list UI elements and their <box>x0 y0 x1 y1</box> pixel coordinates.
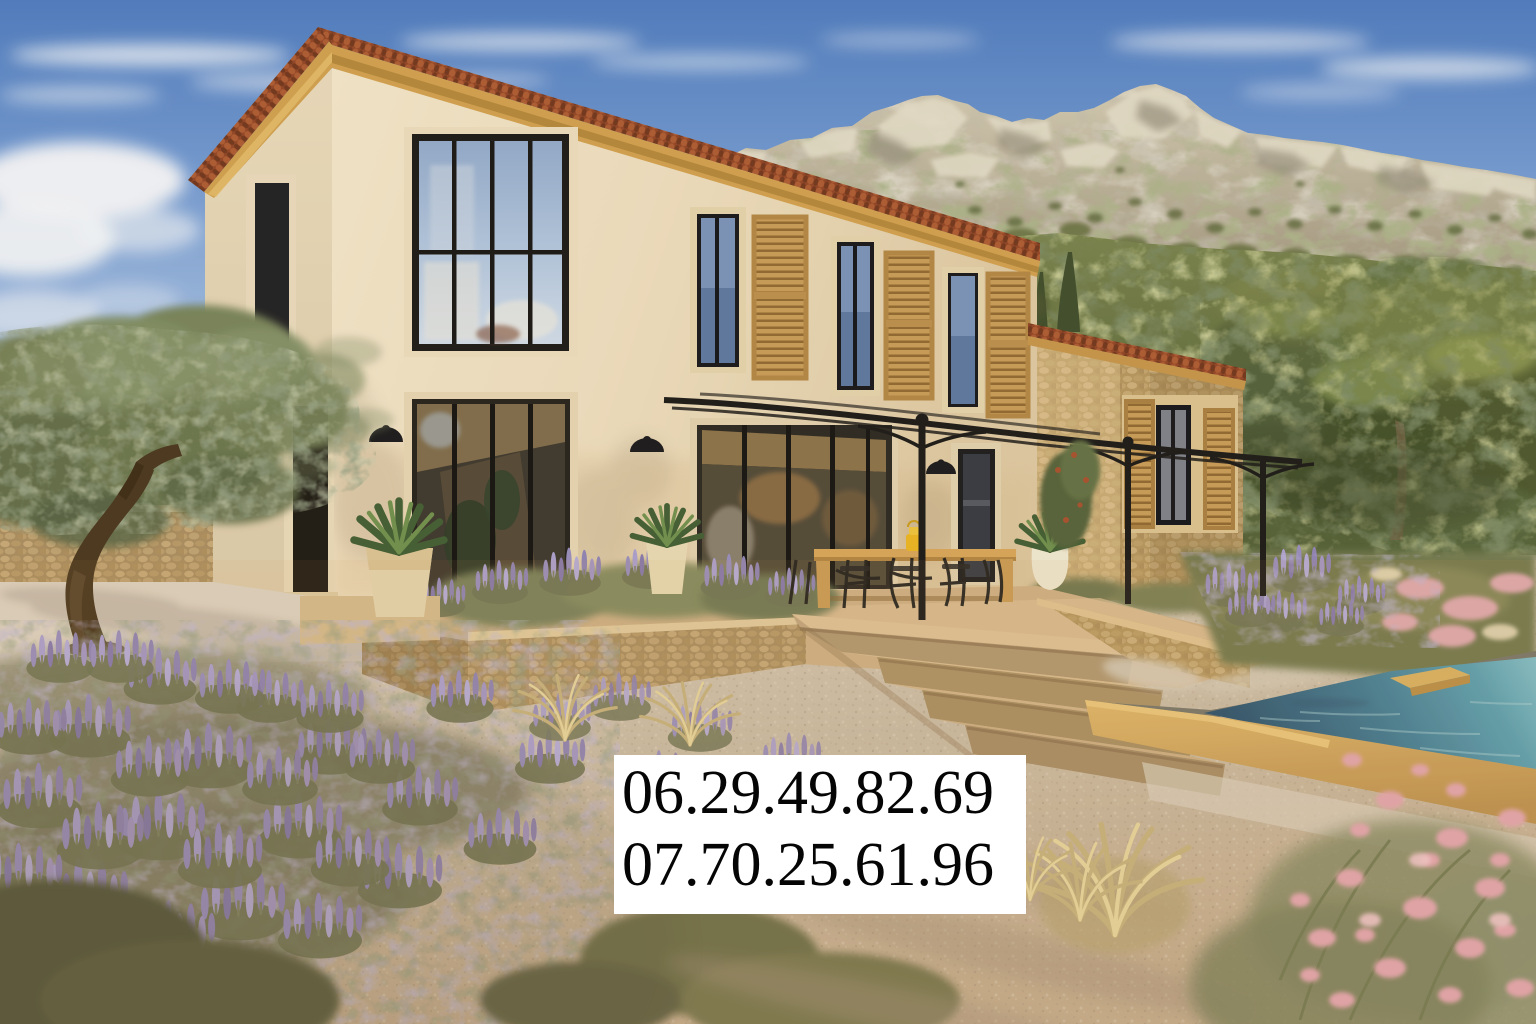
svg-text:07.70.25.61.96: 07.70.25.61.96 <box>622 831 994 899</box>
svg-text:06.29.49.82.69: 06.29.49.82.69 <box>622 759 994 827</box>
